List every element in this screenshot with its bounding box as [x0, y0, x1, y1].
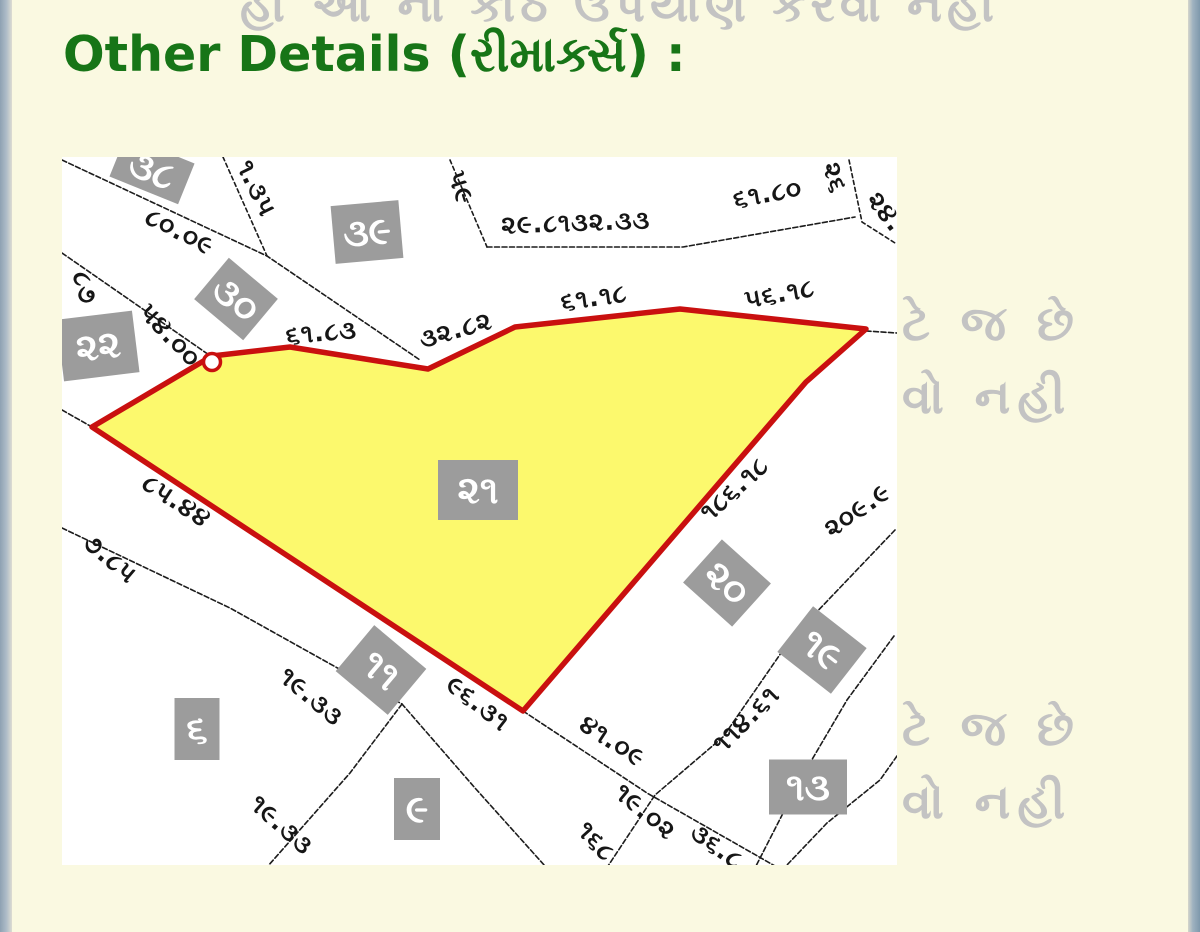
plot-number-label: ૧૩	[786, 765, 830, 809]
measurement-label: ૩૬.૮	[685, 817, 749, 865]
measurement-label: ૬૧.૮૩	[285, 315, 358, 350]
watermark-right-1: ટે જ છે	[902, 296, 1192, 354]
plot-number-label: ૨૨	[73, 321, 123, 370]
measurement-label: ૫૬.૧૮	[742, 273, 817, 314]
plot-number-box: ૧૯	[777, 606, 866, 694]
plot-vertex-marker	[204, 354, 221, 371]
watermark-right-2: વો નહી	[902, 369, 1192, 427]
page-title: Other Details (રીમાર્ક્સ) :	[63, 26, 686, 84]
measurement-label: ૨૦૯.૯	[819, 477, 896, 543]
boundary-line	[866, 331, 897, 333]
plot-number-box: ૨૧	[438, 460, 518, 520]
plot-number-box: ૩૯	[331, 200, 404, 264]
survey-map: ૮૦.૦૯૧.૩૫૮૭૫૪.૦૦૫૯૨૯.૮૧૩૨.૩૩૬૧.૮૦૨૬૨૪.૬૧…	[62, 157, 897, 865]
plot-number-box: ૬	[175, 698, 220, 760]
measurement-label: ૨૪.	[861, 186, 897, 237]
measurement-label: ૨૬	[817, 159, 853, 196]
measurement-label: ૬૧.૮૦	[731, 173, 805, 214]
plot-number-box: ૨૦	[683, 539, 771, 626]
watermark-right-3: ટે જ છે	[902, 701, 1192, 759]
plot-number-box: ૩૦	[194, 258, 278, 341]
plot-number-label: ૩૯	[341, 208, 392, 256]
measurement-label: ૭.૮૫	[78, 528, 143, 589]
measurement-label: ૨૯.૮૧૩૨.૩૩	[501, 205, 651, 239]
plot-number-label: ૬	[186, 707, 207, 751]
plot-number-label: ૯	[406, 787, 429, 831]
plot-number-box: ૧૩	[769, 760, 847, 815]
watermark-right-4: વો નહી	[902, 774, 1192, 832]
boundary-line	[62, 410, 92, 427]
survey-map-svg: ૮૦.૦૯૧.૩૫૮૭૫૪.૦૦૫૯૨૯.૮૧૩૨.૩૩૬૧.૮૦૨૬૨૪.૬૧…	[62, 157, 897, 865]
measurement-label: ૬૧.૧૮	[559, 279, 629, 317]
measurement-label: ૧૯.૦૨	[609, 777, 682, 845]
measurement-label: ૫૪.૦૦	[134, 297, 207, 373]
measurement-label: ૫૯	[442, 167, 480, 208]
measurement-label: ૮૭	[67, 268, 104, 308]
measurement-label: ૮૦.૦૯	[141, 202, 219, 261]
plot-number-box: ૨૨	[62, 311, 139, 382]
plot-number-box: ૯	[394, 778, 440, 840]
plot-number-box: ૩૮	[109, 157, 194, 204]
measurement-label: ૪૧.૦૯	[574, 709, 650, 773]
plot-number-label: ૩૦	[203, 267, 268, 332]
measurement-label: ૧.૩૫	[231, 157, 283, 221]
measurement-label: ૧૬૮	[571, 816, 621, 865]
plot-number-label: ૨૧	[458, 468, 499, 512]
measurement-label: ૧૧૪.૬૧	[707, 680, 785, 758]
page-border-left	[0, 0, 12, 932]
